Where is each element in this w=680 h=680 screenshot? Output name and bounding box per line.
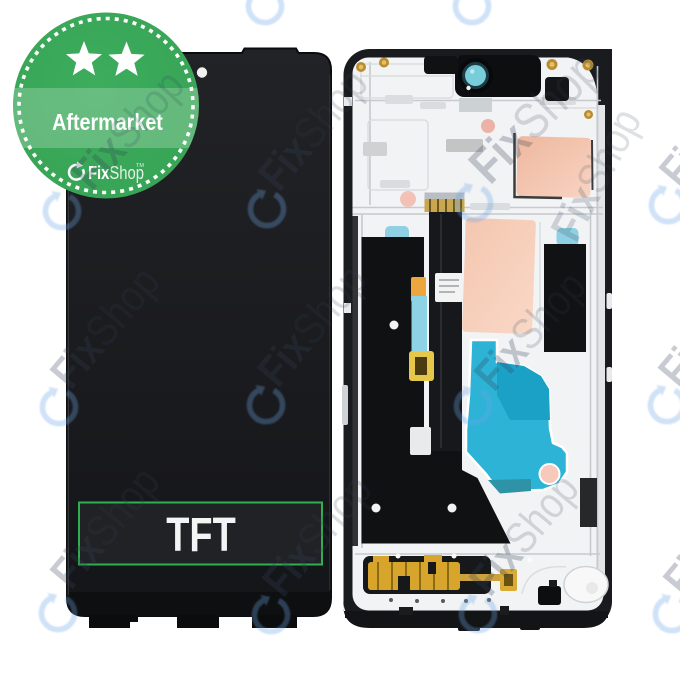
svg-text:TFT: TFT bbox=[166, 509, 235, 562]
svg-text:TM: TM bbox=[136, 163, 144, 169]
